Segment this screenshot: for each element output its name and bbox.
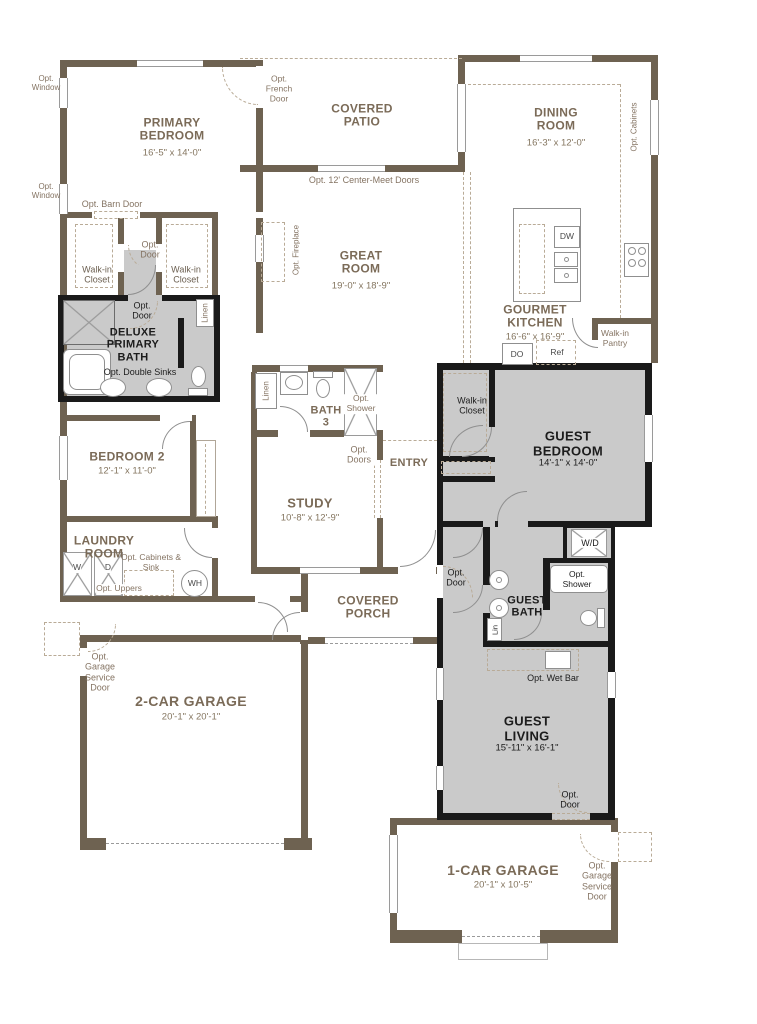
kitchen-counter-dashed	[620, 84, 621, 318]
window	[520, 55, 592, 62]
window	[436, 766, 444, 790]
patio-slider-door	[457, 84, 466, 152]
sink-drain	[564, 273, 569, 278]
door-swing-arc	[580, 834, 610, 862]
garage-door-dashed	[106, 843, 284, 844]
wall-segment	[483, 641, 615, 647]
opt-doors-dashed	[374, 460, 375, 518]
window	[300, 567, 360, 574]
window	[650, 100, 659, 155]
opt-garage-service-door-outline	[44, 622, 80, 656]
room-label-bath-3: BATH 3	[308, 405, 344, 430]
opt-door-label: Opt. Door	[135, 240, 165, 261]
room-dims-guest-bedroom: 14'-1" x 14'-0"	[539, 458, 597, 469]
garage-step	[458, 943, 548, 960]
wall-segment	[212, 218, 218, 297]
door-opening	[498, 521, 528, 527]
window	[59, 436, 68, 480]
opt-garage-service-door-label: Opt. Garage Service Door	[573, 860, 621, 901]
wall-segment	[156, 272, 162, 297]
walk-in-closet-label: Walk-in Closet	[450, 396, 494, 417]
opt-shower-label: Opt. Shower	[557, 570, 597, 590]
opt-double-sinks-label: Opt. Double Sinks	[104, 367, 177, 377]
door-opening	[301, 612, 308, 640]
room-label-guest-bath: GUEST BATH	[502, 595, 552, 620]
entry-boundary-dashed	[383, 440, 437, 441]
room-label-2-car-garage: 2-CAR GARAGE	[135, 694, 247, 710]
walk-in-closet-label: Walk-in Closet	[164, 265, 208, 286]
room-label-dining-room: DINING ROOM	[521, 107, 591, 134]
room-dims-bedroom-2: 12'-1" x 11'-0"	[98, 466, 156, 477]
window	[137, 60, 203, 67]
room-dims-1-car-garage: 20'-1" x 10'-5"	[474, 880, 532, 891]
burner	[638, 259, 646, 267]
room-label-entry: ENTRY	[390, 457, 428, 469]
opt-center-meet-doors-label: Opt. 12' Center-Meet Doors	[309, 175, 419, 185]
kitchen-counter-dashed	[468, 84, 620, 85]
door-swing-arc	[280, 406, 308, 432]
room-dims-study: 10'-8" x 12'-9"	[281, 513, 339, 524]
toilet-bowl	[191, 366, 206, 387]
garage-vehicle-door	[106, 838, 284, 850]
room-dims-gourmet-kitchen: 16'-6" x 16'-9"	[506, 332, 564, 343]
kitchen-greatroom-boundary	[470, 172, 471, 363]
opt-cabinets-sink-label: Opt. Cabinets & Sink	[118, 553, 184, 573]
room-label-guest-living: GUEST LIVING	[497, 714, 557, 743]
room-label-bedroom-2: BEDROOM 2	[89, 450, 164, 463]
linen-label: Linen	[262, 381, 271, 401]
room-label-guest-bedroom: GUEST BEDROOM	[522, 429, 614, 458]
double-oven-label: DO	[511, 350, 524, 360]
toilet-bowl	[316, 379, 330, 398]
sink	[285, 375, 303, 390]
toilet-bowl	[580, 610, 597, 626]
opt-french-door-arc	[222, 67, 258, 105]
opt-window-label: Opt. Window	[29, 74, 63, 92]
sink	[100, 378, 126, 397]
opt-wet-bar-label: Opt. Wet Bar	[527, 673, 579, 683]
opt-door-label: Opt. Door	[127, 301, 157, 322]
opt-uppers-label: Opt. Uppers	[96, 584, 142, 594]
room-dims-dining-room: 16'-3" x 12'-0"	[527, 138, 585, 149]
opt-fireplace-outline	[261, 222, 285, 282]
front-door-swing-arc	[400, 530, 436, 567]
water-heater-label: WH	[188, 579, 202, 589]
door-opening	[212, 528, 218, 558]
room-dims-guest-living: 15'-11" x 16'-1"	[495, 743, 558, 754]
garage-service-door-opening	[611, 832, 618, 862]
porch-opening	[325, 637, 413, 644]
opt-doors-label: Opt. Doors	[343, 445, 375, 466]
toilet-tank	[313, 371, 333, 378]
opt-door-opening	[552, 813, 590, 820]
opt-shower-label: Opt. Shower	[343, 394, 379, 414]
room-label-study: STUDY	[287, 497, 333, 512]
walk-in-closet-label: Walk-in Closet	[75, 265, 119, 286]
wall-segment	[251, 437, 257, 574]
burner	[638, 247, 646, 255]
toilet-tank	[597, 608, 605, 628]
wall-segment	[214, 295, 220, 402]
hall-closet	[196, 440, 216, 517]
burner	[628, 259, 636, 267]
room-label-great-room: GREAT ROOM	[326, 250, 396, 277]
wall-segment	[592, 318, 652, 324]
wall-segment	[60, 218, 67, 602]
window	[280, 365, 308, 372]
garage-door-dashed	[462, 936, 540, 937]
floor-plan: DW DO Ref WH PRIMARY BEDROOM 16'-5" x 14…	[0, 0, 757, 1024]
burner	[628, 247, 636, 255]
door-swing-arc	[88, 624, 116, 652]
door-swing-arc	[162, 421, 190, 449]
room-dims-great-room: 19'-0" x 18'-9"	[332, 281, 390, 292]
opt-cabinets-label: Opt. Cabinets	[630, 103, 639, 152]
center-meet-door-opening	[318, 165, 385, 172]
hall-closet-dashed	[441, 461, 491, 474]
room-dims-primary-bedroom: 16'-5" x 14'-0"	[143, 148, 201, 159]
opt-door-label: Opt. Door	[441, 568, 471, 589]
dishwasher-label: DW	[560, 232, 574, 242]
window	[436, 668, 444, 700]
room-label-1-car-garage: 1-CAR GARAGE	[447, 863, 559, 879]
room-label-covered-patio: COVERED PATIO	[322, 103, 402, 130]
opt-french-door-label: Opt. French Door	[259, 74, 299, 103]
opt-fireplace-label: Opt. Fireplace	[292, 225, 301, 275]
opt-garage-service-door-outline	[618, 832, 652, 862]
room-label-primary-bedroom: PRIMARY BEDROOM	[122, 117, 222, 144]
wall-segment	[118, 218, 124, 244]
patio-roof-dashed	[240, 58, 462, 59]
wall-segment	[58, 396, 220, 402]
sink-drain	[496, 577, 502, 583]
wall-segment	[178, 318, 184, 368]
wet-bar-sink	[545, 651, 571, 669]
wall-segment	[437, 521, 483, 527]
island-counter-dashed	[519, 224, 545, 294]
room-label-covered-porch: COVERED PORCH	[333, 595, 403, 622]
closet-rod-dashed	[205, 444, 206, 514]
room-label-gourmet-kitchen: GOURMET KITCHEN	[490, 304, 580, 331]
linen-label: Linen	[201, 303, 210, 323]
washer-dryer-label: W/D	[581, 538, 599, 548]
opt-barn-door-label: Opt. Barn Door	[82, 199, 143, 209]
room-dims-2-car-garage: 20'-1" x 20'-1"	[162, 712, 220, 723]
front-door-opening	[398, 567, 436, 574]
opt-window-label: Opt. Window	[29, 182, 63, 200]
sink-drain	[564, 257, 569, 262]
opt-garage-service-door-label: Opt. Garage Service Door	[76, 651, 124, 692]
sink	[146, 378, 172, 397]
window	[389, 835, 398, 913]
opt-barn-door-dashed	[94, 211, 138, 219]
opt-door-label: Opt. Door	[555, 790, 585, 811]
lin-label: Lin	[491, 625, 500, 635]
opt-doors-dashed	[380, 460, 381, 518]
wall-segment	[377, 518, 383, 574]
kitchen-greatroom-boundary	[463, 172, 464, 363]
room-label-walk-in-pantry: Walk-in Pantry	[591, 329, 639, 349]
toilet-tank	[188, 388, 208, 396]
washer-label: W	[73, 563, 81, 573]
wall-segment	[437, 476, 495, 482]
room-label-deluxe-primary-bath: DELUXE PRIMARY BATH	[102, 327, 164, 364]
window	[607, 672, 616, 698]
wall-segment	[60, 516, 218, 522]
window	[644, 415, 653, 462]
door-swing-arc	[184, 528, 212, 558]
refrigerator-label: Ref	[550, 348, 563, 358]
dryer-label: D	[105, 563, 111, 573]
wall-segment	[377, 430, 383, 460]
